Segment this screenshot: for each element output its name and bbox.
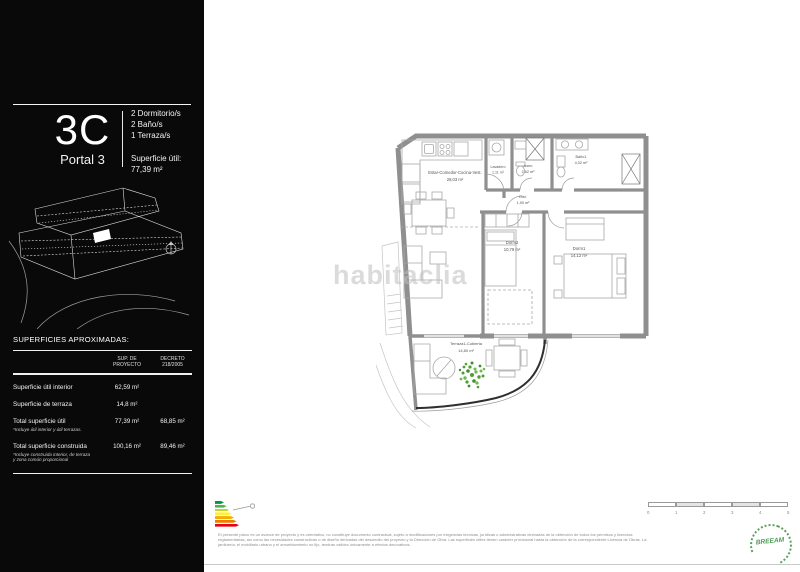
table-rule <box>13 350 192 351</box>
areas-table-title: SUPERFICIES APROXIMADAS: <box>13 335 192 344</box>
room-label-lavadero: Lavadero <box>491 165 506 169</box>
table-row-note: *Incluye construida interior, de terraza… <box>13 452 93 463</box>
unit-code: 3C <box>50 106 115 154</box>
energy-rating-pointer <box>229 502 259 514</box>
scale-tick: 0 <box>647 510 649 515</box>
breeam-logo: BREEAM <box>744 522 796 570</box>
room-label-dorm2: Dorm2 <box>506 240 519 245</box>
plant-icon <box>459 362 486 389</box>
room-area-terraza: 14,80 m² <box>458 348 474 353</box>
unit-features: 2 Dormitorio/s 2 Baño/s 1 Terraza/s Supe… <box>131 108 181 175</box>
header-divider <box>122 111 123 167</box>
feature-bedrooms: 2 Dormitorio/s <box>131 108 181 119</box>
table-rule <box>13 373 192 375</box>
room-label-dist: Dist. <box>519 195 527 199</box>
portal-label: Portal 3 <box>50 152 115 167</box>
table-row: Total superficie útil *Incluye útil inte… <box>13 418 192 433</box>
sidebar-top-rule <box>13 104 191 105</box>
feature-bathrooms: 2 Baño/s <box>131 119 181 130</box>
room-area-bano1: 4,02 m² <box>575 161 589 165</box>
scale-bar: 0 1 2 3 4 5 <box>648 502 788 518</box>
compass-icon <box>166 241 176 254</box>
room-label-bano1: Baño1 <box>576 155 587 159</box>
table-header-row: SUP. DE PROYECTO DECRETO 218/2005 <box>13 356 192 368</box>
room-area-lavadero: 1,11 m² <box>492 171 505 175</box>
scale-tick: 1 <box>675 510 677 515</box>
room-area-aseo: 2,62 m² <box>522 170 536 174</box>
watermark: habitaclia <box>333 260 468 291</box>
table-row: Superficie útil interior 62,59 m² <box>13 384 192 391</box>
scale-tick: 4 <box>759 510 761 515</box>
room-label-dorm1: Dorm1 <box>573 246 586 251</box>
room-area-estar: 28,03 m² <box>447 177 464 182</box>
areas-table: SUPERFICIES APROXIMADAS: SUP. DE PROYECT… <box>13 335 192 479</box>
footer-rule <box>204 564 800 565</box>
col-header-proyecto: SUP. DE PROYECTO <box>101 356 153 368</box>
energy-efficiency-label <box>215 501 275 533</box>
building-axon-image <box>7 183 197 329</box>
room-area-dist: 1,90 m² <box>517 201 531 205</box>
table-row: Total superficie construida *Incluye con… <box>13 443 192 463</box>
col-header-decreto: DECRETO 218/2005 <box>153 356 192 368</box>
feature-terraces: 1 Terraza/s <box>131 130 181 141</box>
highlighted-unit-marker <box>93 229 111 243</box>
scale-tick: 3 <box>731 510 733 515</box>
room-label-terraza: Terraza1-Cubierta <box>450 341 483 346</box>
superficie-util-value: 77,39 m² <box>131 164 181 175</box>
room-area-dorm1: 14,12 m² <box>571 253 588 258</box>
sidebar: 3C Portal 3 2 Dormitorio/s 2 Baño/s 1 Te… <box>0 0 204 572</box>
room-area-dorm2: 10,79 m² <box>504 247 521 252</box>
scale-tick: 5 <box>787 510 789 515</box>
scale-tick: 2 <box>703 510 705 515</box>
room-label-aseo: Aseo <box>524 164 533 168</box>
room-label-estar: Estar-Comedor-Cocina-Vest. <box>428 170 482 175</box>
table-rule <box>13 473 192 474</box>
table-row: Superficie de terraza 14,8 m² <box>13 401 192 408</box>
table-row-note: *Incluye útil interior y útil terrazas. <box>13 427 93 433</box>
superficie-util-label: Superficie útil: <box>131 153 181 164</box>
disclaimer-text: El presente plano es un avance de proyec… <box>218 532 663 547</box>
floorplan-sheet: 3C Portal 3 2 Dormitorio/s 2 Baño/s 1 Te… <box>0 0 800 572</box>
